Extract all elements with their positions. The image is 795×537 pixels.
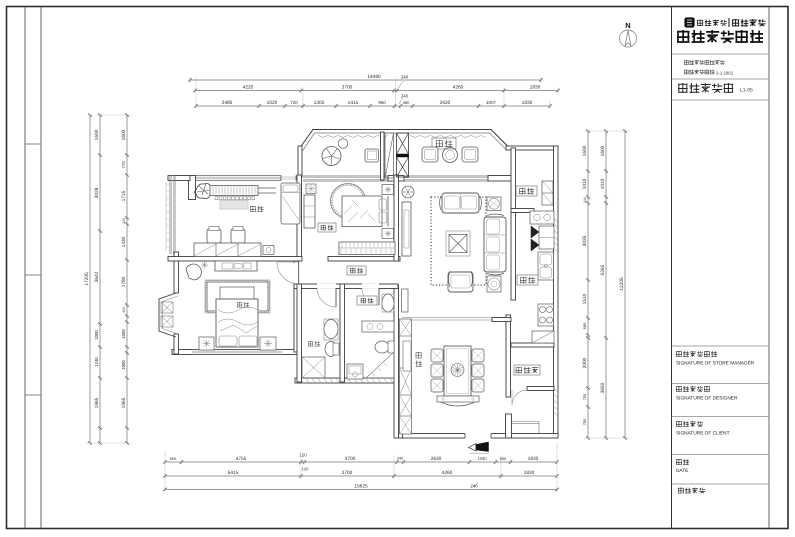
svg-text:SIGNATURE OF STORE MANAGER: SIGNATURE OF STORE MANAGER xyxy=(676,361,754,367)
svg-text:4260: 4260 xyxy=(442,470,453,476)
svg-text:2620: 2620 xyxy=(440,100,451,106)
svg-text:2000: 2000 xyxy=(582,358,588,369)
svg-text:1600: 1600 xyxy=(121,130,127,141)
svg-text:450: 450 xyxy=(123,307,127,313)
svg-text:1000: 1000 xyxy=(121,329,126,339)
svg-text:17205: 17205 xyxy=(84,272,90,285)
svg-text:3700: 3700 xyxy=(345,456,356,462)
svg-text:1830: 1830 xyxy=(522,100,533,106)
svg-text:240: 240 xyxy=(401,94,408,99)
svg-text:660: 660 xyxy=(170,457,176,462)
svg-text:1040: 1040 xyxy=(477,457,486,462)
svg-text:14490: 14490 xyxy=(367,74,380,80)
svg-text:1830: 1830 xyxy=(528,456,539,462)
svg-text:120: 120 xyxy=(302,467,309,472)
svg-text:780: 780 xyxy=(583,419,588,425)
svg-text:240: 240 xyxy=(401,75,408,80)
svg-text:1600: 1600 xyxy=(600,146,606,157)
svg-text:L1-05: L1-05 xyxy=(740,88,753,94)
svg-text:SIGNATURE OF DESIGNER: SIGNATURE OF DESIGNER xyxy=(676,396,737,402)
svg-text:1007: 1007 xyxy=(486,100,496,105)
svg-text:2480: 2480 xyxy=(222,100,233,106)
svg-text:600: 600 xyxy=(500,457,506,462)
svg-text:1305: 1305 xyxy=(314,100,325,106)
svg-text:240: 240 xyxy=(397,456,403,461)
svg-text:1715: 1715 xyxy=(121,191,127,202)
svg-text:750: 750 xyxy=(583,394,588,400)
svg-text:120: 120 xyxy=(299,453,306,458)
svg-text:12205: 12205 xyxy=(619,277,625,290)
svg-text:680: 680 xyxy=(583,323,588,329)
svg-text:2-1-1801: 2-1-1801 xyxy=(716,70,733,75)
svg-text:1430: 1430 xyxy=(121,237,127,248)
svg-text:1600: 1600 xyxy=(582,146,588,157)
svg-text:240: 240 xyxy=(584,197,588,203)
svg-text:3700: 3700 xyxy=(342,470,353,476)
svg-text:480: 480 xyxy=(403,101,410,106)
svg-text:1830: 1830 xyxy=(524,470,535,476)
svg-text:5415: 5415 xyxy=(228,470,239,476)
svg-text:3650: 3650 xyxy=(600,383,606,394)
svg-text:DATE: DATE xyxy=(676,468,688,474)
svg-text:15625: 15625 xyxy=(354,484,367,490)
svg-text:1965: 1965 xyxy=(121,398,127,409)
svg-text:240: 240 xyxy=(123,218,127,224)
svg-text:3700: 3700 xyxy=(342,85,353,91)
svg-text:1020: 1020 xyxy=(267,100,278,106)
svg-text:1965: 1965 xyxy=(94,398,100,409)
svg-text:1240: 1240 xyxy=(94,357,99,367)
svg-text:1510: 1510 xyxy=(582,294,588,305)
svg-text:4260: 4260 xyxy=(453,85,464,91)
svg-text:720: 720 xyxy=(290,100,298,105)
svg-text:1780: 1780 xyxy=(121,277,127,288)
svg-text:770: 770 xyxy=(121,161,126,168)
svg-text:1000: 1000 xyxy=(121,360,126,370)
svg-text:960: 960 xyxy=(378,100,386,105)
svg-text:1000: 1000 xyxy=(94,330,99,340)
svg-text:1010: 1010 xyxy=(600,179,606,190)
svg-text:3642: 3642 xyxy=(94,272,100,283)
svg-text:3028: 3028 xyxy=(94,188,100,199)
svg-text:4755: 4755 xyxy=(236,456,247,462)
svg-text:2630: 2630 xyxy=(431,456,442,462)
svg-text:240: 240 xyxy=(470,484,477,489)
svg-text:1415: 1415 xyxy=(348,100,359,106)
svg-text:SIGNATURE OF CLIENT: SIGNATURE OF CLIENT xyxy=(676,431,730,437)
svg-text:5265: 5265 xyxy=(600,265,606,276)
svg-text::: : xyxy=(703,489,704,495)
svg-text:N: N xyxy=(625,21,630,30)
svg-text:1600: 1600 xyxy=(94,130,100,141)
svg-text:1830: 1830 xyxy=(530,85,541,91)
svg-text:1010: 1010 xyxy=(582,179,588,190)
svg-text:4220: 4220 xyxy=(243,85,254,91)
svg-text:3035: 3035 xyxy=(582,236,588,247)
